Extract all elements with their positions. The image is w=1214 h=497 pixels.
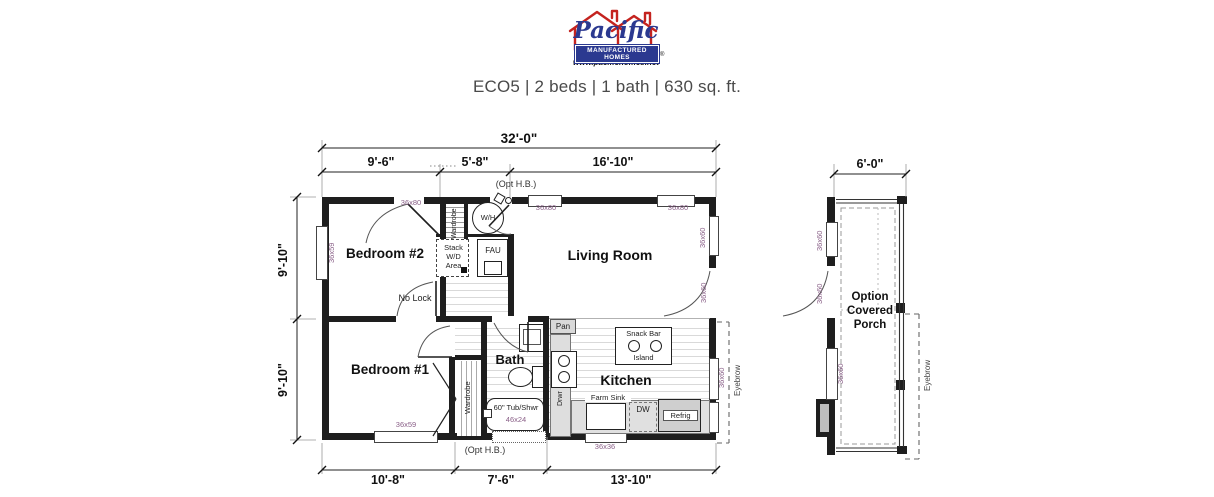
label-window-living-2: 36x80: [661, 203, 695, 212]
room-label-bedroom1: Bedroom #1: [335, 362, 445, 377]
label-window-living-right: 36x60: [698, 220, 707, 256]
no-lock-door-opening: [396, 316, 436, 322]
bath-sink-icon: [523, 329, 541, 345]
water-heater-pipe-icon: [505, 197, 512, 204]
burner-icon-2: [558, 371, 570, 383]
wall-fau-closet-right: [508, 237, 514, 316]
label-fau: FAU: [478, 246, 508, 255]
dim-porch-width: 6'-0": [840, 157, 900, 171]
label-door-living-right: 36x60: [699, 275, 708, 311]
room-label-porch: Option Covered Porch: [839, 290, 901, 332]
room-label-kitchen: Kitchen: [590, 372, 662, 388]
logo-brand-text: Pacific: [566, 17, 666, 44]
toilet-bowl-icon: [508, 367, 533, 387]
room-label-bedroom2: Bedroom #2: [330, 246, 440, 261]
porch-door-opening: [826, 266, 836, 318]
plan-title: ECO5 | 2 beds | 1 bath | 630 sq. ft.: [0, 77, 1214, 97]
porch-post-mid-2: [896, 380, 905, 390]
label-window-bedroom1-bottom: 36x59: [388, 420, 424, 429]
label-snack-bar: Snack Bar: [615, 329, 672, 338]
burner-icon-1: [558, 355, 570, 367]
note-opt-hose-bib-bottom: (Opt H.B.): [455, 446, 515, 455]
logo-banner: MANUFACTURED HOMES: [574, 44, 660, 64]
label-window-bedroom2-left: 36x59: [327, 234, 336, 272]
porch-post-top-right: [897, 196, 907, 204]
dim-top-1: 9'-6": [341, 155, 421, 169]
label-wardrobe-bedroom1: Wardrobe: [463, 372, 472, 424]
dim-bottom-3: 13'-10": [591, 473, 671, 487]
label-dishwasher: DW: [630, 405, 656, 414]
farm-sink-icon: [586, 403, 626, 430]
dim-left-2: 9'-10": [276, 350, 290, 410]
pacific-logo: Pacific MANUFACTURED HOMES ® www.pacific…: [566, 8, 666, 74]
island-stool-icon-1: [628, 340, 640, 352]
window-living-right: [709, 216, 719, 256]
porch-post-bottom-right: [897, 446, 907, 454]
fau-inner-box: [484, 261, 502, 275]
window-kitchen-right-lower: [709, 402, 719, 433]
label-window-kitchen-bottom: 36x36: [587, 442, 623, 451]
label-tub: 60" Tub/Shwr: [492, 403, 540, 412]
label-drawers: Drwr: [556, 385, 565, 413]
bath-door-opening: [492, 316, 528, 322]
dim-bottom-2: 7'-6": [471, 473, 531, 487]
toilet-tank-icon: [532, 366, 544, 388]
label-farm-sink: Farm Sink: [585, 393, 631, 402]
label-tub-size: 46x24: [492, 415, 540, 424]
label-water-heater: W/H: [474, 213, 502, 222]
label-door-porch: 36x60: [815, 276, 824, 312]
living-exterior-door-opening: [709, 268, 717, 318]
window-porch-wall-1: [826, 222, 838, 257]
note-opt-hose-bib-top: (Opt H.B.): [486, 180, 546, 189]
porch-chase-inner: [820, 404, 829, 432]
label-window-kitchen-right: 36x60: [717, 360, 726, 396]
wall-wardrobe-utility-edge: [464, 203, 468, 242]
dim-left-1: 9'-10": [276, 230, 290, 290]
dim-overall-width: 32'-0": [469, 131, 569, 146]
label-refrigerator: Refrig: [663, 410, 698, 421]
dim-bottom-1: 10'-8": [348, 473, 428, 487]
label-pantry: Pan: [550, 322, 576, 331]
label-island: Island: [615, 353, 672, 362]
label-window-living-1: 36x80: [529, 203, 563, 212]
room-label-living: Living Room: [550, 247, 670, 263]
bedroom1-door-opening: [449, 322, 455, 357]
floor-plan-sheet: Pacific MANUFACTURED HOMES ® www.pacific…: [0, 0, 1214, 497]
label-stack-wd: Stack W/D Area: [438, 243, 469, 270]
room-label-bath: Bath: [487, 352, 533, 367]
logo-registered-mark: ®: [660, 52, 664, 58]
label-eyebrow-main: Eyebrow: [733, 350, 742, 410]
tub-valve-icon: [483, 409, 492, 418]
label-window-porch-2: 36x60: [836, 356, 845, 392]
label-no-lock: No Lock: [390, 294, 440, 303]
label-door-bedroom2: 36x80: [394, 198, 428, 207]
label-wardrobe-utility: Wardrobe: [450, 206, 459, 242]
label-eyebrow-porch: Eyebrow: [923, 345, 932, 405]
window-bedroom1-bottom: [374, 431, 438, 443]
label-window-porch-1: 36x60: [815, 224, 824, 258]
island-stool-icon-2: [650, 340, 662, 352]
dim-top-2: 5'-8": [445, 155, 505, 169]
dim-top-3: 16'-10": [573, 155, 653, 169]
window-bath-bottom-optional: [492, 431, 546, 443]
